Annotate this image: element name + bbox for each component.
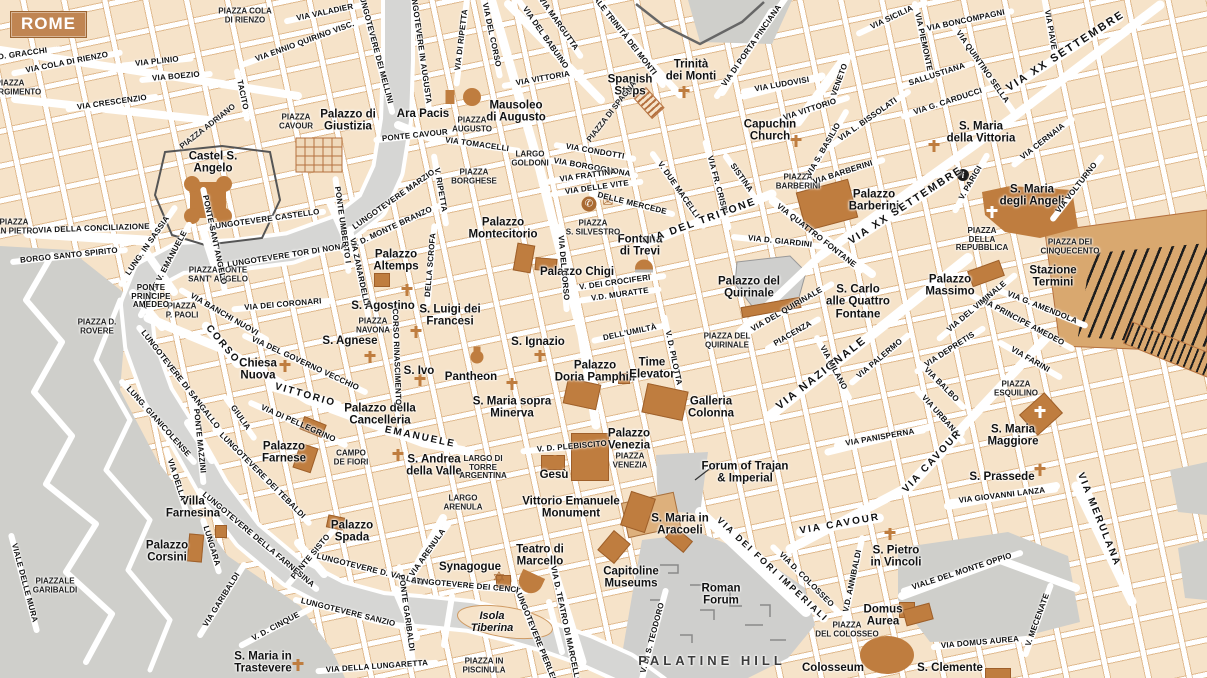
landmark-palazzo-del-quirinale: Palazzo delQuirinale	[718, 276, 780, 301]
label-piazza-san-pietro: PIAZZASAN PIETRO	[0, 218, 38, 235]
road	[26, 255, 112, 662]
landmark-colosseum: Colosseum	[802, 662, 864, 674]
wcross-icon	[1035, 406, 1046, 418]
landmark-s-maria-sopra-minerva: S. Maria sopraMinerva	[473, 396, 552, 421]
cross-icon	[293, 659, 304, 671]
cross-icon	[1035, 464, 1046, 476]
label-piazza-cavour: PIAZZACAVOUR	[279, 113, 313, 130]
landmark-palazzo-farnese: PalazzoFarnese	[262, 441, 306, 466]
cross-icon	[507, 378, 518, 390]
landmark-s-agnese: S. Agnese	[322, 335, 377, 347]
rome-map-canvas: ✆✉i✡ Castel S.AngeloPalazzo diGiustiziaA…	[0, 0, 1207, 678]
landmark-castel-s-angelo: Castel S.Angelo	[189, 151, 238, 176]
mausoleo-icon	[463, 88, 481, 106]
landmark-capitoline-museums: CapitolineMuseums	[603, 566, 659, 591]
landmark-palazzo-venezia: PalazzoVenezia	[608, 428, 650, 453]
landmark-s-pietro-in-vincoli: S. Pietroin Vincoli	[871, 545, 922, 570]
label-ponte-principe-amedeo: PONTEPRINCIPEAMEDEO	[131, 284, 170, 310]
landmark-capuchin-church: CapuchinChurch	[744, 119, 796, 144]
arapacis-icon	[446, 90, 455, 104]
label-largo-goldoni: LARGOGOLDONI	[511, 150, 548, 167]
landmark-s-ignazio: S. Ignazio	[511, 336, 565, 348]
landmark-palazzo-montecitorio: PalazzoMontecitorio	[469, 217, 538, 242]
landmark-pantheon: Pantheon	[445, 371, 497, 383]
landmark-stazione-termini: StazioneTermini	[1029, 265, 1076, 290]
landmark-time-elevator: TimeElevator	[629, 357, 674, 382]
cross-icon	[929, 140, 940, 152]
landmark-s-maria-della-vittoria: S. Mariadella Vittoria	[947, 121, 1016, 146]
landmark-ara-pacis: Ara Pacis	[397, 108, 449, 120]
label-piazza-s-silvestro: PIAZZAS. SILVESTRO	[566, 219, 621, 236]
landmark-building	[374, 273, 390, 287]
label-piazza-borghese: PIAZZABORGHESE	[451, 168, 497, 185]
landmark-palazzo-altemps: PalazzoAltemps	[373, 249, 418, 274]
label-piazza-d-rovere: PIAZZA D.ROVERE	[78, 318, 117, 335]
label-palatine-hill: PALATINE HILL	[638, 654, 786, 668]
cross-icon	[393, 449, 404, 461]
label-piazza-navona: PIAZZANAVONA	[356, 317, 390, 334]
phone-icon: ✆	[582, 197, 597, 212]
colosseum-icon	[860, 636, 914, 674]
landmark-s-maria-degli-angeli: S. Mariadegli Angeli	[1000, 184, 1065, 209]
landmark-s-carlo-alle-quattro-fontane: S. Carloalle QuattroFontane	[826, 283, 890, 320]
landmark-palazzo-doria-pamphili: PalazzoDoria Pamphili	[555, 360, 636, 385]
label-piazza-dei-cinquecento: PIAZZA DEICINQUECENTO	[1041, 238, 1100, 255]
cross-icon	[365, 351, 376, 363]
landmark-vittorio-emanuele-monument: Vittorio EmanueleMonument	[522, 496, 620, 521]
landmark-building	[985, 668, 1011, 678]
landmark-s-maria-maggiore: S. MariaMaggiore	[987, 424, 1038, 449]
landmark-ges: Gesù	[540, 469, 569, 481]
label-campo-de-fiori: CAMPODE FIORI	[334, 449, 369, 466]
landmark-palazzo-di-giustizia: Palazzo diGiustizia	[320, 109, 376, 134]
cross-icon	[402, 284, 413, 296]
landmark-building	[186, 533, 203, 562]
landmark-mausoleo-di-augusto: Mausoleodi Augusto	[486, 100, 546, 125]
label-isola-tiberina: IsolaTiberina	[471, 611, 514, 635]
landmark-s-ivo: S. Ivo	[404, 365, 435, 377]
landmark-palazzo-massimo: PalazzoMassimo	[925, 274, 974, 299]
wcross-icon	[987, 206, 998, 218]
landmark-s-luigi-dei-francesi: S. Luigi deiFrancesi	[419, 304, 480, 329]
label-piazza-esquilino: PIAZZAESQUILINO	[994, 380, 1038, 397]
label-piazza-del-colosseo: PIAZZADEL COLOSSEO	[815, 621, 878, 638]
landmark-galleria-colonna: GalleriaColonna	[688, 396, 734, 421]
label-piazzale-garibaldi: PIAZZALEGARIBALDI	[33, 577, 77, 594]
cross-icon	[633, 516, 644, 528]
landmark-roman-forum: RomanForum	[702, 583, 741, 608]
pantheon-icon	[471, 351, 484, 364]
landmark-palazzo-corsini: PalazzoCorsini	[146, 540, 188, 565]
landmark-s-andrea-della-valle: S. Andreadella Valle	[406, 454, 462, 479]
road	[444, 596, 452, 645]
map-title-badge: ROME	[10, 11, 87, 38]
label-piazza-cola-di-rienzo: PIAZZA COLADI RIENZO	[218, 7, 271, 24]
label-piazza-della-repubblica: PIAZZADELLAREPUBBLICA	[956, 227, 1008, 253]
label-piazza-augusto: PIAZZAAUGUSTO	[452, 116, 492, 133]
label-piazza-risorgimento: PIAZZARISORGIMENTO	[0, 79, 41, 96]
label-piazza-in-piscinula: PIAZZA INPISCINULA	[462, 657, 505, 674]
landmark-s-maria-in-aracoeli: S. Maria inAracoeli	[651, 513, 709, 538]
landmark-s-maria-in-trastevere: S. Maria inTrastevere	[234, 651, 292, 676]
landmark-synagogue: Synagogue	[439, 561, 501, 573]
landmark-palazzo-della-cancelleria: Palazzo dellaCancelleria	[344, 403, 416, 428]
cross-icon	[535, 350, 546, 362]
trevi-icon	[635, 260, 653, 273]
cross-icon	[550, 455, 561, 467]
cross-icon	[280, 360, 291, 372]
landmark-palazzo-spada: PalazzoSpada	[331, 520, 373, 545]
landmark-palazzo-chigi: Palazzo Chigi	[540, 266, 614, 278]
label-largo-arenula: LARGOARENULA	[443, 494, 482, 511]
landmark-s-clemente: S. Clemente	[917, 662, 983, 674]
label-piazza-del-quirinale: PIAZZA DELQUIRINALE	[704, 332, 751, 349]
landmark-building	[215, 525, 227, 538]
cross-icon	[885, 528, 896, 540]
landmark-s-prassede: S. Prassede	[969, 471, 1034, 483]
landmark-forum-of-trajan-imperial: Forum of Trajan& Imperial	[702, 461, 789, 486]
label-largo-di-torre-argentina: LARGO DITORREARGENTINA	[459, 455, 507, 481]
label-piazza-venezia: PIAZZAVENEZIA	[613, 452, 648, 469]
landmark-trinit-dei-monti: Trinitàdei Monti	[666, 59, 716, 84]
cross-icon	[679, 86, 690, 98]
landmark-chiesa-nuova: ChiesaNuova	[239, 358, 277, 383]
